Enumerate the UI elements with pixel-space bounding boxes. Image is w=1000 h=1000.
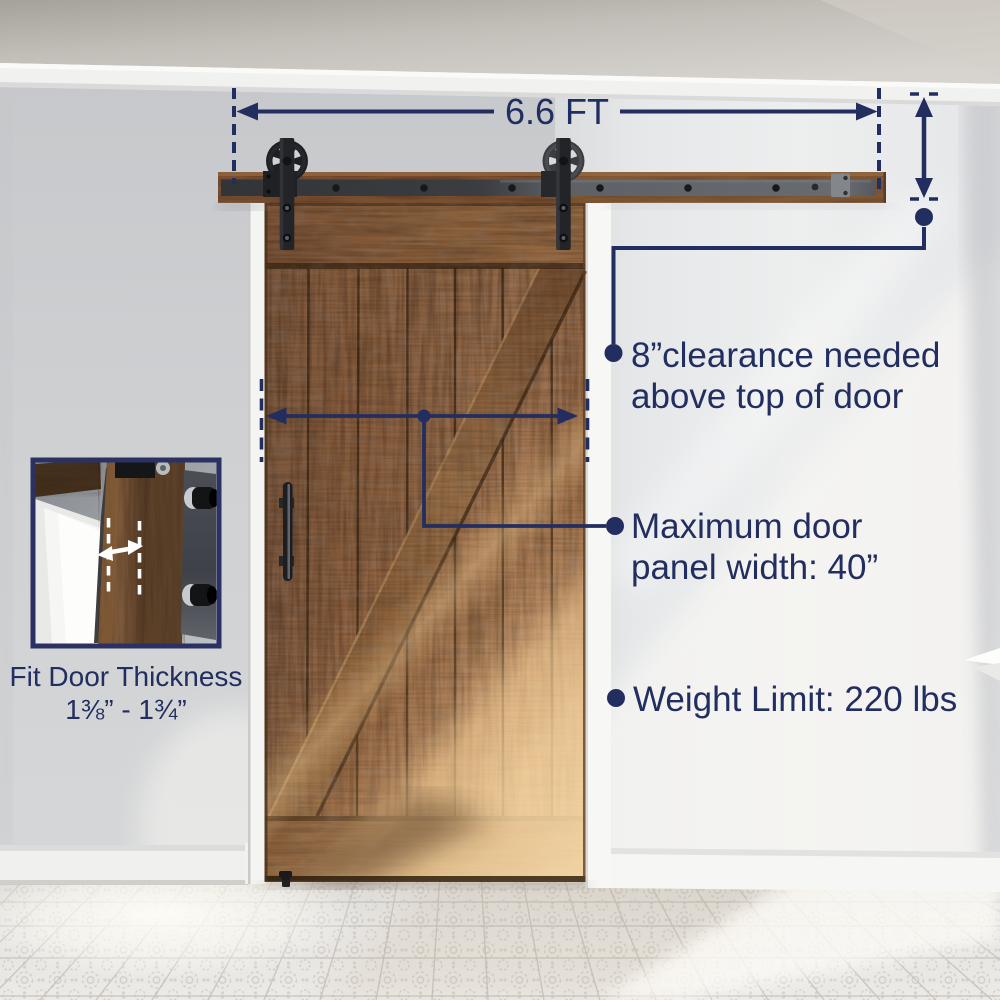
svg-text:8”clearance needed: 8”clearance needed <box>631 336 940 375</box>
svg-text:Weight Limit: 220 lbs: Weight Limit: 220 lbs <box>633 680 957 719</box>
svg-text:Fit Door Thickness: Fit Door Thickness <box>10 661 243 692</box>
svg-text:1⅜” - 1¾”: 1⅜” - 1¾” <box>65 694 186 725</box>
svg-text:above top of door: above top of door <box>631 377 904 416</box>
svg-text:6.6 FT: 6.6 FT <box>505 91 609 132</box>
svg-text:panel width: 40”: panel width: 40” <box>631 548 878 587</box>
svg-text:Maximum door: Maximum door <box>631 507 863 546</box>
